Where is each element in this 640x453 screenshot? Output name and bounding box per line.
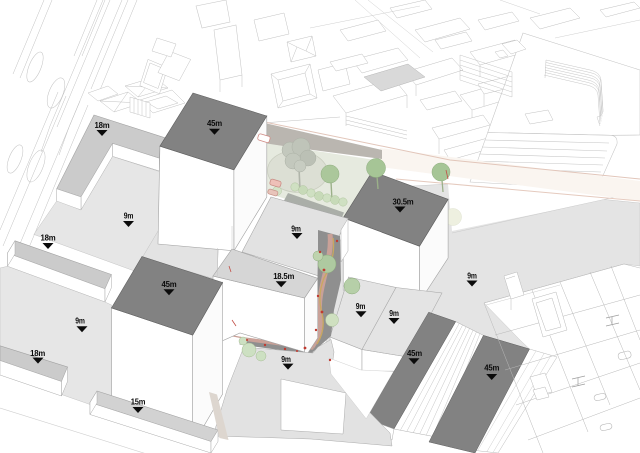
svg-text:30.5m: 30.5m bbox=[393, 198, 414, 207]
svg-text:9m: 9m bbox=[356, 302, 366, 311]
svg-text:18.5m: 18.5m bbox=[273, 272, 294, 281]
svg-text:15m: 15m bbox=[131, 398, 146, 407]
svg-text:9m: 9m bbox=[291, 224, 301, 233]
svg-text:45m: 45m bbox=[484, 364, 499, 373]
svg-text:45m: 45m bbox=[162, 280, 177, 289]
svg-text:9m: 9m bbox=[75, 317, 85, 326]
svg-text:45m: 45m bbox=[407, 349, 422, 358]
svg-text:9m: 9m bbox=[467, 272, 477, 281]
svg-text:18m: 18m bbox=[41, 234, 56, 243]
svg-text:18m: 18m bbox=[95, 121, 110, 130]
svg-text:9m: 9m bbox=[124, 212, 134, 221]
svg-text:45m: 45m bbox=[207, 119, 222, 128]
svg-text:9m: 9m bbox=[281, 355, 291, 364]
svg-text:9m: 9m bbox=[389, 309, 399, 318]
svg-text:18m: 18m bbox=[30, 349, 45, 358]
